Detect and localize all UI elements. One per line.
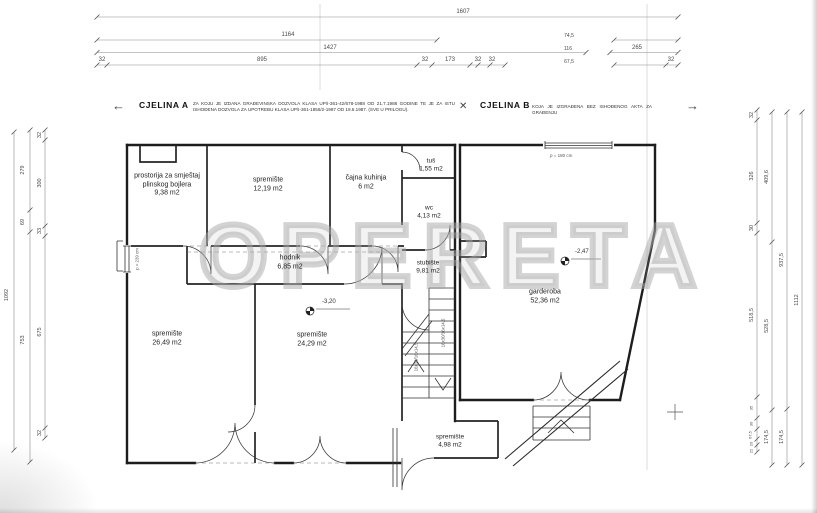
- arrow-left-icon: ←: [112, 98, 125, 113]
- dim-label: 32: [489, 57, 496, 63]
- dim-label: 32: [422, 57, 429, 63]
- room-name: plinskog bojlera: [143, 181, 192, 188]
- dim-label: 74,5: [564, 33, 574, 39]
- room-label-stubiste: stubište 9,81 m2: [416, 260, 440, 275]
- room-name: garderoba: [529, 289, 561, 296]
- floorplan-drawing: [0, 0, 817, 513]
- room-name: spremište: [152, 331, 182, 338]
- room-name: prostorija za smještaj: [134, 172, 200, 179]
- room-label-tus: tuš 1,55 m2: [419, 158, 443, 173]
- room-name: tuš: [427, 158, 436, 165]
- dim-label: 174,5: [764, 430, 770, 444]
- section-b-title: CJELINA B: [480, 100, 530, 110]
- room-area: 1,55 m2: [419, 165, 443, 172]
- dim-label: 174,5: [779, 430, 785, 444]
- stair-spec-label: 16x30/16x14,5: [414, 343, 419, 372]
- dim-label: 1607: [456, 9, 469, 15]
- dim-label: 1164: [282, 32, 295, 38]
- dim-label: 20: [749, 442, 754, 446]
- dim-label: 32: [668, 57, 675, 63]
- dim-label: 173: [445, 57, 455, 63]
- dim-label: 265: [632, 45, 642, 51]
- dim-label: 32: [99, 57, 106, 63]
- room-label-wc: wc 4,13 m2: [417, 205, 441, 220]
- dim-label: 32: [37, 132, 43, 138]
- dim-label: 32: [749, 112, 755, 118]
- dimension-ticks: [12, 15, 805, 468]
- dim-label: 30: [749, 225, 755, 231]
- dim-label: 1112: [794, 294, 800, 305]
- room-area: 4,98 m2: [438, 441, 462, 448]
- dim-label: 22: [749, 449, 754, 453]
- room-label-spremiste-24: spremište 24,29 m2: [297, 332, 327, 349]
- arrow-right-icon: →: [686, 98, 699, 113]
- room-label-spremiste-5: spremište 4,98 m2: [436, 434, 464, 449]
- room-name: čajna kuhinja: [346, 175, 387, 182]
- dim-label: 33: [37, 228, 43, 234]
- room-area: 52,36 m2: [530, 297, 559, 304]
- dim-label: 1427: [323, 45, 336, 51]
- window-openings: [123, 141, 614, 273]
- room-area: 12,19 m2: [253, 185, 282, 192]
- dim-label: 937,5: [779, 253, 785, 267]
- dim-label: 32: [475, 57, 482, 63]
- dim-label: 279: [20, 165, 26, 174]
- room-name: stubište: [417, 260, 439, 267]
- dim-label: 326: [749, 171, 755, 180]
- room-label-bojler: prostorija za smještaj plinskog bojlera …: [134, 172, 200, 198]
- room-label-garderoba: garderoba 52,36 m2: [529, 289, 561, 306]
- room-name: spremište: [297, 332, 327, 339]
- parapet-label-left: p = 239 cm: [135, 248, 140, 270]
- room-area: 4,13 m2: [417, 212, 441, 219]
- room-label-spremiste-12: spremište 12,19 m2: [253, 177, 283, 194]
- room-label-spremiste-26: spremište 26,49 m2: [152, 331, 182, 348]
- elevation-marker-a: [306, 307, 350, 315]
- survey-cross-icon: [667, 404, 683, 420]
- room-label-hodnik: hodnik 6,85 m2: [277, 255, 302, 272]
- dim-label: 409,6: [764, 170, 770, 184]
- dim-label: 528,5: [764, 319, 770, 333]
- parapet-label-garderoba: p = 180 cm: [550, 153, 572, 158]
- dim-label: 32: [37, 430, 43, 436]
- dim-label: 67,5: [564, 59, 574, 65]
- room-name: spremište: [253, 177, 283, 184]
- exterior-ramp: [505, 361, 628, 466]
- room-area: 6,85 m2: [277, 263, 302, 270]
- room-name: spremište: [436, 434, 464, 441]
- dim-label: 300: [37, 178, 43, 187]
- room-area: 9,81 m2: [416, 267, 440, 274]
- room-name: wc: [425, 205, 433, 212]
- section-break-icon: ✕: [459, 101, 467, 112]
- elevation-label-b: -2,47: [575, 249, 589, 255]
- dim-label: 675: [37, 327, 43, 336]
- room-area: 9,38 m2: [154, 189, 179, 196]
- dim-label: 67,5: [748, 431, 753, 439]
- elevation-label-a: -3,20: [322, 299, 336, 305]
- section-b-note: KOJA JE IZGRAĐENA BEZ ISHOĐENOG AKTA ZA …: [532, 104, 652, 115]
- floorplan-page: OPERETA ← CJELINA A ZA KOJU JE IZDANA GR…: [0, 0, 817, 513]
- elevation-marker-b: [561, 257, 601, 265]
- dim-label: 1092: [4, 289, 10, 301]
- room-label-cajna-kuhinja: čajna kuhinja 6 m2: [346, 175, 387, 192]
- section-a-title: CJELINA A: [139, 100, 189, 110]
- dim-label: 753: [20, 335, 26, 344]
- dim-label: 35: [749, 406, 754, 410]
- section-a-note: ZA KOJU JE IZDANA GRAĐEVINSKA DOZVOLA KL…: [193, 101, 455, 112]
- dim-label: 69: [20, 219, 26, 225]
- room-area: 24,29 m2: [297, 340, 326, 347]
- room-name: hodnik: [280, 255, 301, 262]
- room-area: 26,49 m2: [152, 339, 181, 346]
- dim-label: 518,5: [749, 308, 755, 322]
- room-area: 6 m2: [358, 183, 374, 190]
- dim-label: 895: [257, 57, 267, 63]
- dashed-lines: [183, 246, 590, 463]
- dim-label: 116: [564, 46, 572, 52]
- stair-spec-label: 16x30/16x14,5: [441, 319, 446, 348]
- dim-label: 30: [749, 422, 754, 426]
